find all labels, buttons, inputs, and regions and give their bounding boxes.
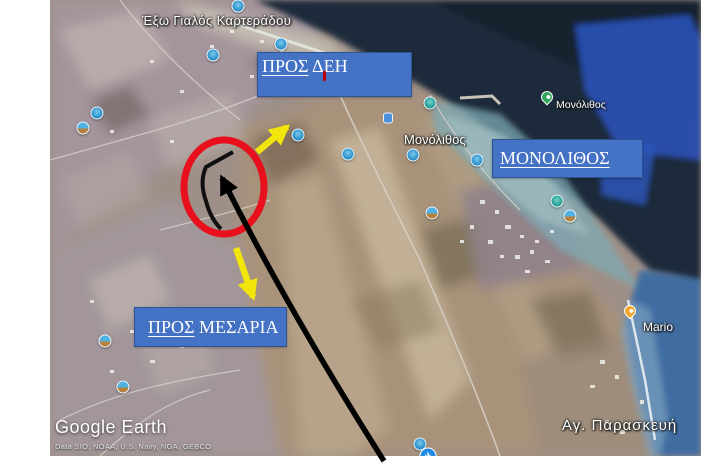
photo-orange-marker-icon[interactable] bbox=[426, 207, 439, 220]
photo-marker-icon[interactable] bbox=[292, 129, 305, 142]
photo-orange-marker-icon[interactable] bbox=[564, 210, 577, 223]
callout-pros-mesaria: ΠΡΟΣ ΜΕΣΑΡΙΑ bbox=[134, 307, 287, 347]
callout-text: ΜΕΣΑΡΙΑ bbox=[195, 317, 279, 337]
callout-monolithos: ΜΟΝΟΛΙΘΟΣ bbox=[492, 139, 643, 178]
place-label-exo-gialos: Έξω Γιαλός Καρτεράδου bbox=[142, 13, 291, 28]
photo-marker-icon[interactable] bbox=[471, 154, 484, 167]
place-label-ag-paraskevi: Αγ. Παρασκευή bbox=[562, 417, 677, 434]
map-attribution-text: Data SIO, NOAA, U.S. Navy, NGA, GEBCO bbox=[55, 442, 211, 451]
photo-marker-icon[interactable] bbox=[232, 0, 245, 13]
photo-marker-icon[interactable] bbox=[207, 49, 220, 62]
photo-orange-marker-icon[interactable] bbox=[117, 381, 130, 394]
photo-marker-icon[interactable] bbox=[342, 148, 355, 161]
callout-text-underlined: ΠΡΟΣ bbox=[262, 56, 309, 76]
callout-text: ΔΕΗ bbox=[309, 56, 348, 76]
callout-pros-dei: ΠΡΟΣ ΔΕΗ bbox=[257, 52, 412, 97]
red-tick-mark bbox=[323, 71, 326, 81]
photo-marker-icon[interactable] bbox=[275, 38, 288, 51]
teal-marker-icon[interactable] bbox=[424, 97, 437, 110]
figure-page: { "map": { "logo": "Google Earth", "attr… bbox=[0, 0, 701, 468]
place-label-mario: Mario bbox=[643, 320, 673, 334]
callout-text-underlined: ΜΟΝΟΛΙΘΟΣ bbox=[500, 148, 610, 168]
photo-marker-icon[interactable] bbox=[91, 107, 104, 120]
photo-marker-icon[interactable] bbox=[407, 149, 420, 162]
place-label-monolithos: Μονόλιθος bbox=[404, 132, 466, 147]
photo-orange-marker-icon[interactable] bbox=[99, 335, 112, 348]
callout-text-underlined: ΠΡΟΣ bbox=[148, 317, 195, 337]
square-marker-icon[interactable] bbox=[383, 113, 393, 124]
photo-orange-marker-icon[interactable] bbox=[77, 122, 90, 135]
place-label-monolithos-poi: Μονόλιθος bbox=[556, 99, 606, 111]
teal-marker-icon[interactable] bbox=[551, 195, 564, 208]
google-earth-logo: Google Earth bbox=[55, 417, 167, 438]
